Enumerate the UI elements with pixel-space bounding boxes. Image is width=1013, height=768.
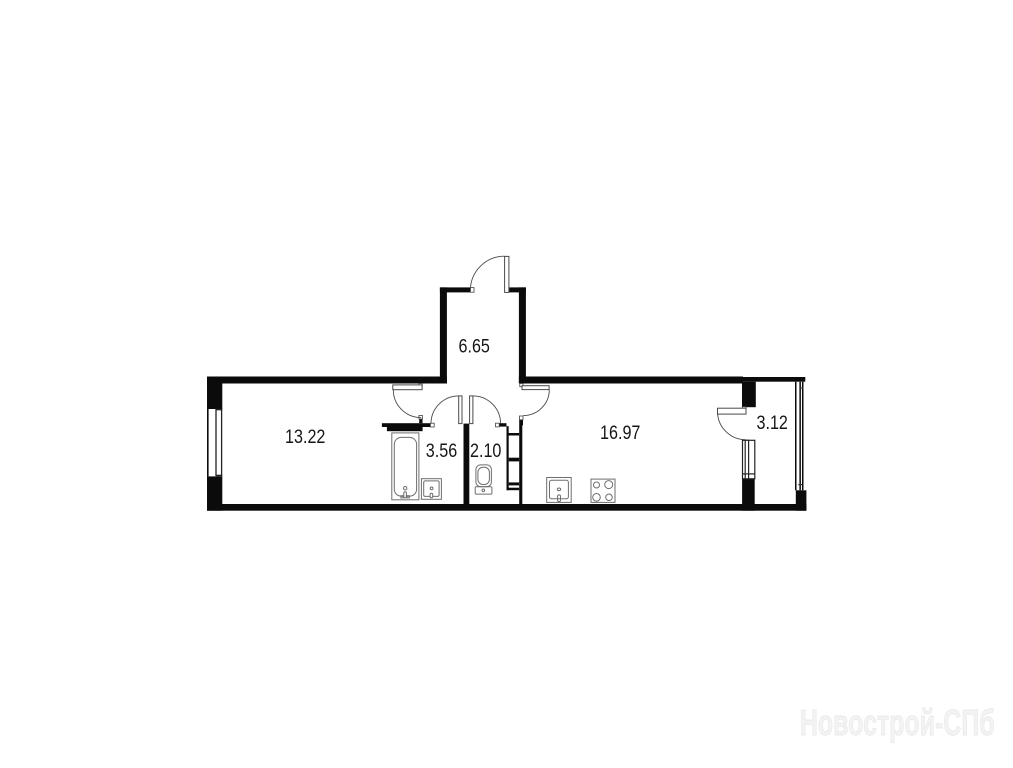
- svg-text:13.22: 13.22: [285, 426, 325, 448]
- svg-text:16.97: 16.97: [600, 422, 640, 444]
- svg-text:2.10: 2.10: [470, 440, 502, 462]
- svg-text:6.65: 6.65: [458, 335, 490, 357]
- svg-text:3.12: 3.12: [756, 412, 787, 434]
- svg-text:3.56: 3.56: [426, 440, 458, 462]
- svg-text:Новострой-СПб: Новострой-СПб: [800, 703, 995, 744]
